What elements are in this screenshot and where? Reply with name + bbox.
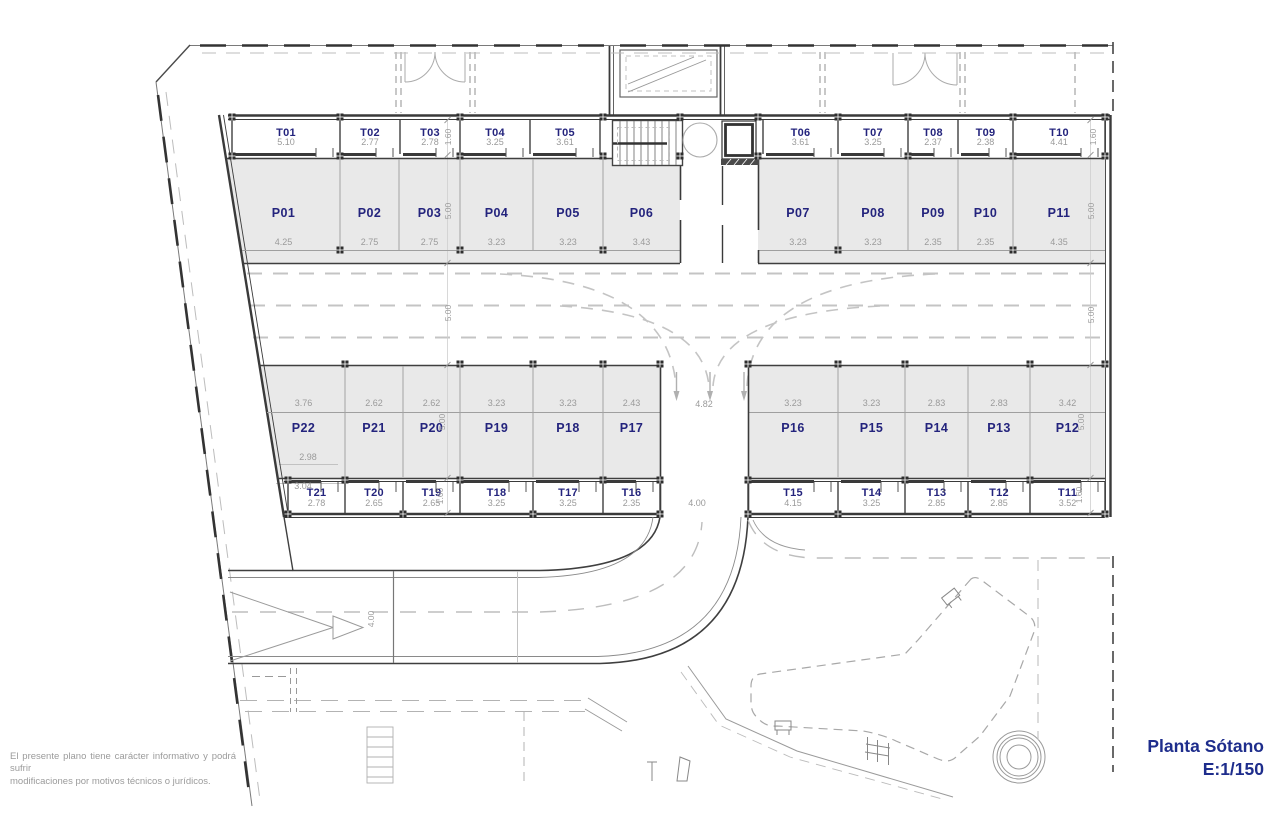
unit-label-P18: P18 — [556, 421, 579, 435]
unit-dim-P19: 3.23 — [488, 398, 506, 408]
unit-dim-T20: 2.65 — [365, 498, 383, 508]
unit-dim-T05: 3.61 — [556, 137, 574, 147]
dimension: 3.04 — [294, 481, 312, 491]
unit-dim-P20: 2.62 — [423, 398, 441, 408]
dimension: 4.82 — [695, 399, 713, 409]
ramp-above-box — [620, 50, 717, 97]
entry-door-left — [405, 52, 465, 82]
unit-label-P16: P16 — [781, 421, 804, 435]
unit-dim-P02: 2.75 — [361, 237, 379, 247]
vertical-dimension: 1.60 — [1088, 128, 1098, 145]
unit-label-P05: P05 — [556, 206, 579, 220]
pool-outline — [751, 578, 1035, 761]
unit-dim-P10: 2.35 — [977, 237, 995, 247]
entry-wall-stubs — [396, 52, 1075, 113]
unit-label-P10: P10 — [974, 206, 997, 220]
unit-dim-T03: 2.78 — [421, 137, 439, 147]
dimension: 2.98 — [299, 452, 317, 462]
vertical-dimension: 5.00 — [437, 413, 447, 430]
unit-label-P04: P04 — [485, 206, 508, 220]
pool-bench-bottom — [775, 721, 791, 735]
unit-dim-P16: 3.23 — [784, 398, 802, 408]
landscape-overlay — [240, 560, 1045, 800]
unit-dim-T01: 5.10 — [277, 137, 295, 147]
turning-circle — [683, 123, 717, 157]
unit-dim-P01: 4.25 — [275, 237, 293, 247]
unit-label-P13: P13 — [987, 421, 1010, 435]
vertical-dimension: 5.00 — [443, 304, 453, 321]
unit-dim-P13: 2.83 — [990, 398, 1008, 408]
unit-dim-T21: 2.78 — [308, 498, 326, 508]
garden-marks — [647, 757, 690, 781]
unit-dim-T02: 2.77 — [361, 137, 379, 147]
unit-dim-P09: 2.35 — [924, 237, 942, 247]
unit-dim-P07: 3.23 — [789, 237, 807, 247]
unit-dim-P22: 3.76 — [295, 398, 313, 408]
unit-dim-T14: 3.25 — [863, 498, 881, 508]
core-and-entry-strip — [396, 45, 1075, 166]
unit-label-P11: P11 — [1048, 206, 1071, 220]
jacuzzi-circles — [993, 731, 1045, 783]
unit-dim-P06: 3.43 — [633, 237, 651, 247]
unit-dim-P15: 3.23 — [863, 398, 881, 408]
plan-scale: E:1/150 — [1147, 758, 1264, 781]
unit-label-P07: P07 — [786, 206, 809, 220]
traffic-arrows — [674, 372, 748, 401]
unit-dim-T07: 3.25 — [864, 137, 882, 147]
pool-ladder — [865, 737, 890, 765]
unit-dim-P21: 2.62 — [365, 398, 383, 408]
upper-stair-outline — [367, 727, 393, 783]
unit-label-P17: P17 — [620, 421, 643, 435]
unit-dim-P03: 2.75 — [421, 237, 439, 247]
vertical-dimension: 5.00 — [443, 202, 453, 219]
staircase — [613, 121, 683, 166]
vertical-dimension: 4.00 — [366, 610, 376, 627]
access-ramp — [228, 517, 1110, 664]
unit-dim-P08: 3.23 — [864, 237, 882, 247]
unit-dim-P17: 2.43 — [623, 398, 641, 408]
unit-label-P21: P21 — [362, 421, 385, 435]
unit-label-P03: P03 — [418, 206, 441, 220]
unit-dim-P18: 3.23 — [559, 398, 577, 408]
unit-dim-P04: 3.23 — [488, 237, 506, 247]
unit-dim-T09: 2.38 — [977, 137, 995, 147]
vertical-dimension: 1.60 — [443, 128, 453, 145]
unit-dim-T08: 2.37 — [924, 137, 942, 147]
unit-dim-P12: 3.42 — [1059, 398, 1077, 408]
unit-dim-T04: 3.25 — [486, 137, 504, 147]
unit-dim-T12: 2.85 — [990, 498, 1008, 508]
unit-dim-P11: 4.35 — [1050, 237, 1068, 247]
unit-label-P19: P19 — [485, 421, 508, 435]
unit-dim-T13: 2.85 — [928, 498, 946, 508]
unit-label-P22: P22 — [292, 421, 315, 435]
floor-plan-canvas: T015.10T022.77T032.78T043.25T053.61T063.… — [0, 0, 1280, 825]
title-block: Planta Sótano E:1/150 — [1147, 735, 1264, 781]
elevator — [721, 121, 759, 165]
unit-label-P15: P15 — [860, 421, 883, 435]
ramp-direction-arrow — [230, 592, 363, 661]
disclaimer-note: El presente plano tiene carácter informa… — [10, 751, 236, 788]
unit-label-P01: P01 — [272, 206, 295, 220]
unit-dim-P05: 3.23 — [559, 237, 577, 247]
disclaimer-line1: El presente plano tiene carácter informa… — [10, 751, 236, 776]
unit-label-P06: P06 — [630, 206, 653, 220]
unit-dim-T16: 2.35 — [623, 498, 641, 508]
floor-plan-drawing: T015.10T022.77T032.78T043.25T053.61T063.… — [0, 0, 1280, 825]
vertical-dimension: 1.60 — [435, 487, 445, 504]
unit-label-P09: P09 — [921, 206, 944, 220]
unit-label-P14: P14 — [925, 421, 948, 435]
unit-dim-T06: 3.61 — [792, 137, 810, 147]
vertical-dimension: 1.60 — [1074, 486, 1084, 503]
disclaimer-line2: modificaciones por motivos técnicos o ju… — [10, 776, 236, 788]
unit-dim-T15: 4.15 — [784, 498, 802, 508]
dimension: 4.00 — [688, 498, 706, 508]
unit-dim-T17: 3.25 — [559, 498, 577, 508]
unit-dim-T18: 3.25 — [488, 498, 506, 508]
vertical-dimension: 5.00 — [1086, 202, 1096, 219]
vertical-dimension: 5.00 — [1086, 306, 1096, 323]
unit-dim-T10: 4.41 — [1050, 137, 1068, 147]
unit-dim-P14: 2.83 — [928, 398, 946, 408]
plan-title: Planta Sótano — [1147, 735, 1264, 758]
unit-label-P08: P08 — [861, 206, 884, 220]
unit-label-P02: P02 — [358, 206, 381, 220]
vertical-dimension: 5.00 — [1076, 413, 1086, 430]
entry-door-right — [893, 53, 957, 85]
